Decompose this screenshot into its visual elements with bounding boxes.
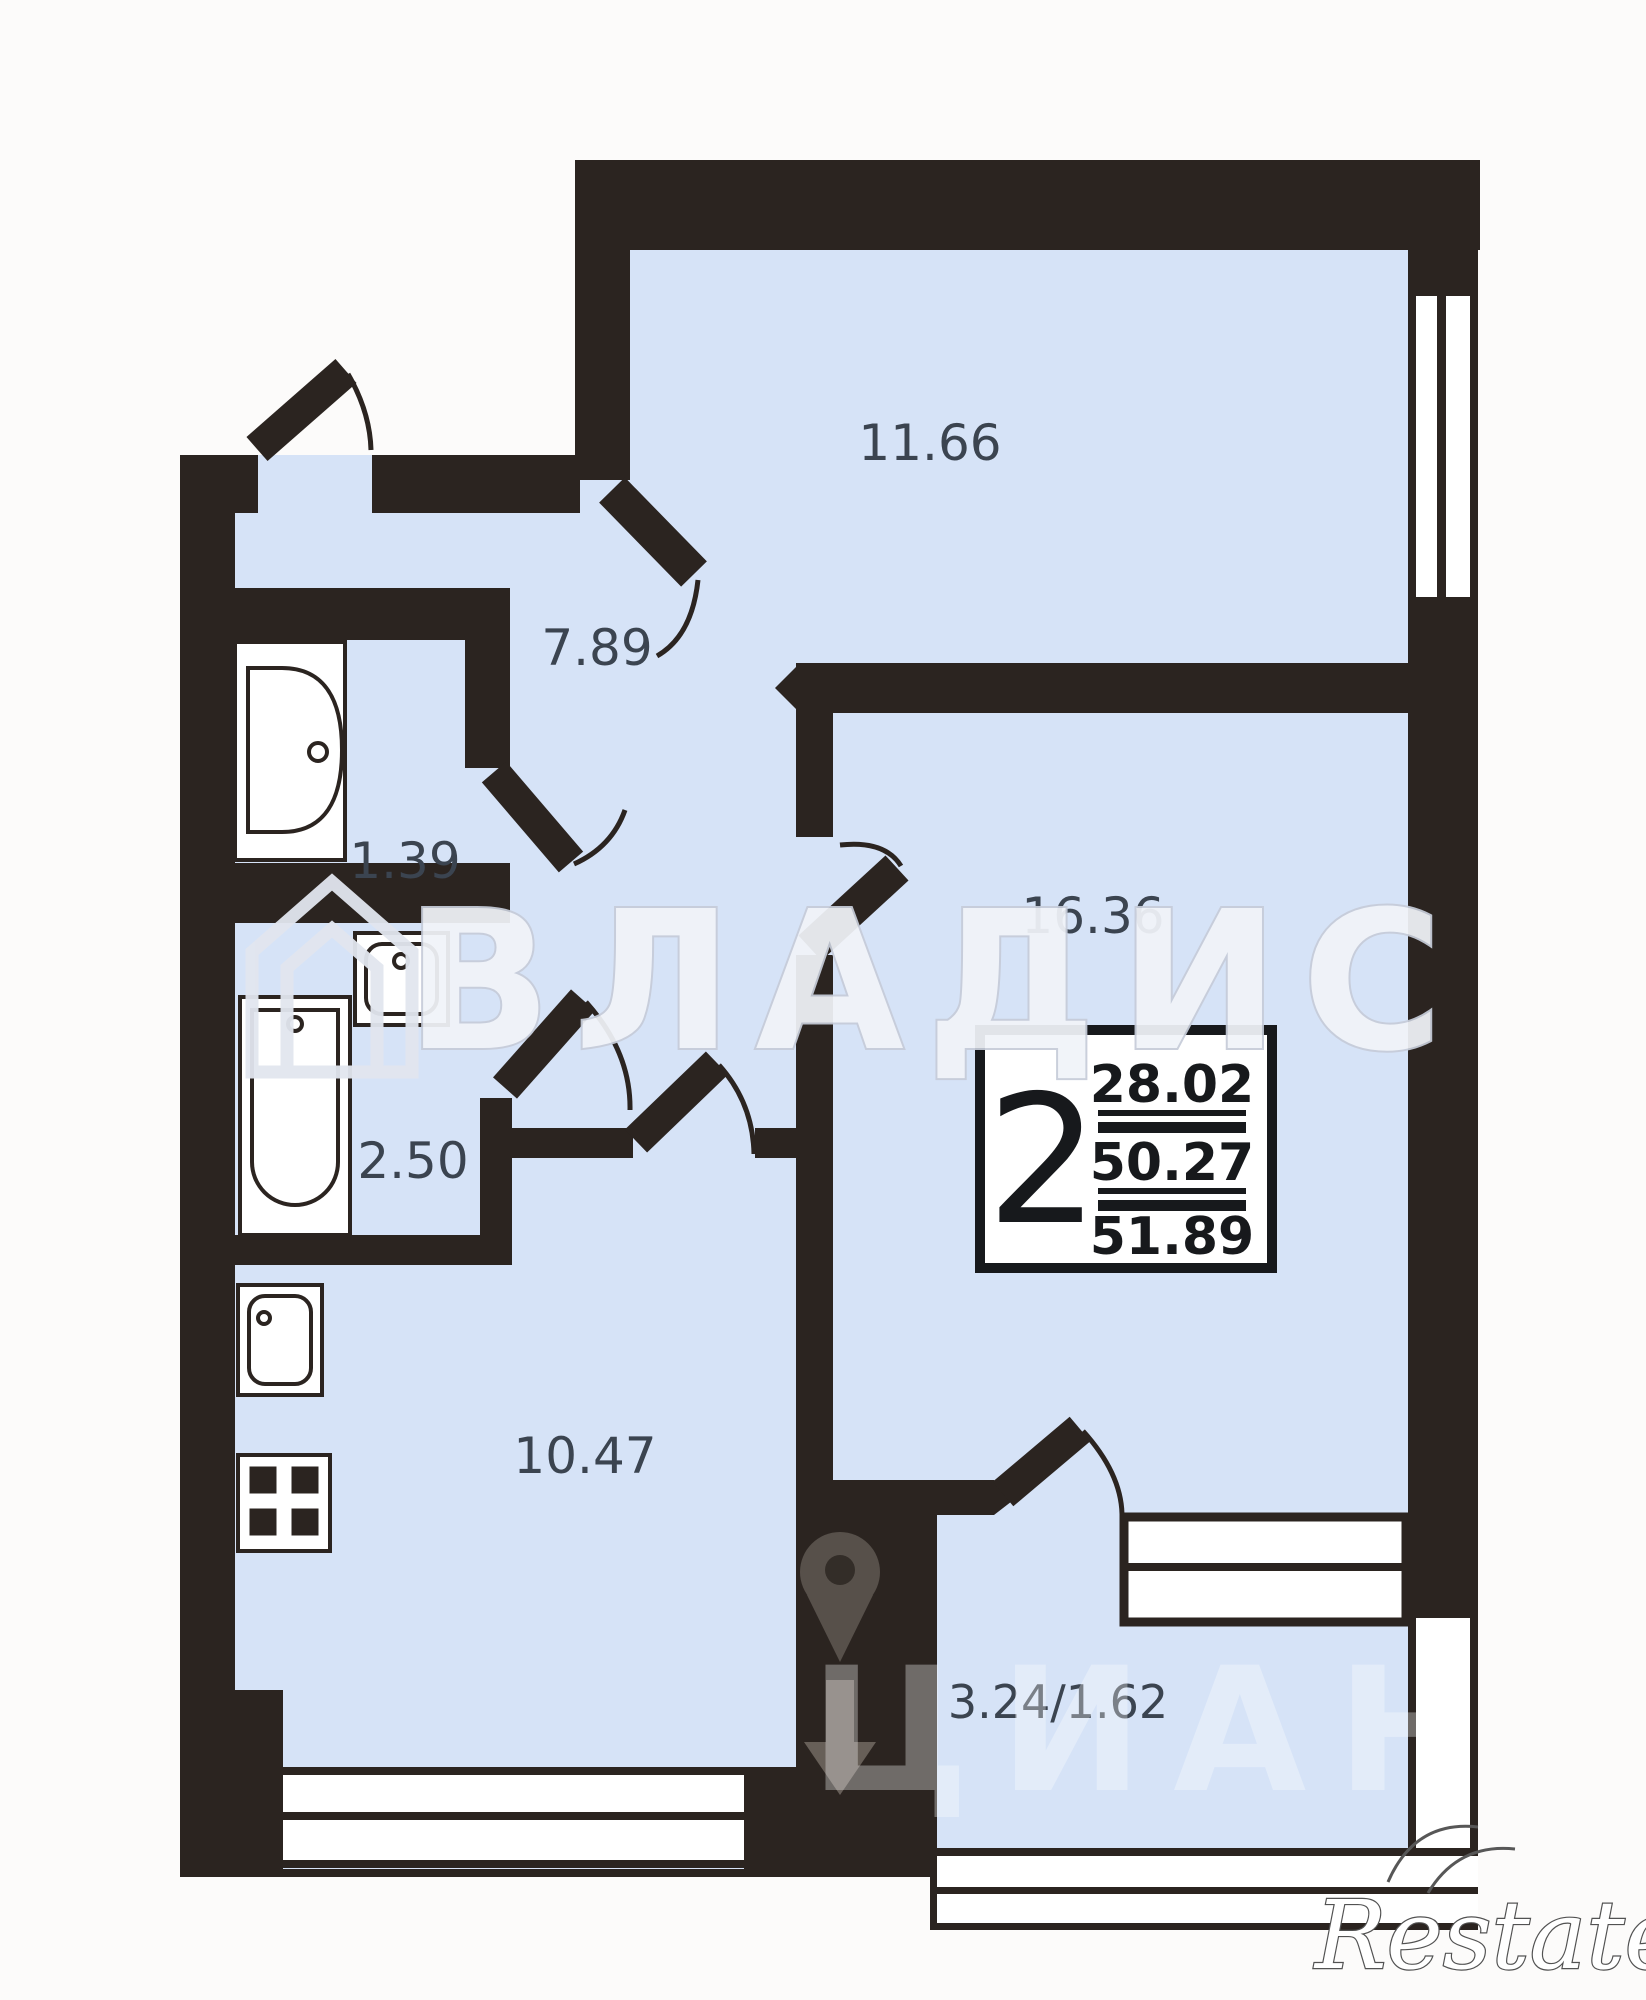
- vladis-watermark-text: ВЛАДИС: [406, 871, 1465, 1094]
- stove-burner: [250, 1509, 276, 1535]
- window-frame-line: [930, 1848, 1478, 1856]
- wall-living-bottom: [800, 663, 1408, 713]
- wall-bedroom-balcony: [937, 1480, 994, 1515]
- window-frame-line: [1408, 296, 1416, 597]
- floor-plan-page: 11.66 7.89 1.39 2.50 16.36 10.47 3.24/1.…: [0, 0, 1646, 2000]
- window-sill-line: [240, 1869, 796, 1877]
- info-area: 50.27: [1090, 1133, 1254, 1193]
- door-leaf: [257, 371, 346, 449]
- wall-kitchen-top-stub: [755, 1128, 796, 1158]
- label-kitchen: 10.47: [513, 1427, 656, 1485]
- info-rule: [1098, 1110, 1246, 1116]
- wall-hall-top-right: [372, 455, 580, 513]
- wall-hall-top-left: [180, 455, 258, 513]
- wall-wc-top: [180, 588, 510, 640]
- wall-outer-left: [180, 455, 235, 1877]
- window-frame-line: [1470, 296, 1478, 597]
- wall-kitchen-window-left-pier: [235, 1690, 283, 1877]
- sink-basin: [249, 1296, 311, 1384]
- label-living-room: 11.66: [858, 414, 1001, 472]
- stove-burner: [292, 1509, 318, 1535]
- wall-wc-right: [465, 588, 510, 768]
- sink-drain: [258, 1312, 270, 1324]
- stove-burner: [292, 1467, 318, 1493]
- kitchen-sink-icon: [238, 1285, 322, 1395]
- label-bathroom: 2.50: [357, 1132, 468, 1190]
- info-rule: [1098, 1122, 1246, 1133]
- window-living-room: [1408, 296, 1478, 597]
- stove-icon: [238, 1455, 330, 1551]
- toilet-icon: [235, 642, 345, 860]
- wall-kitchen-window-pier: [744, 1767, 796, 1877]
- window-kitchen: [240, 1767, 796, 1877]
- toilet-drain: [309, 743, 327, 761]
- info-rule: [1098, 1188, 1246, 1194]
- wall-hall-bedroom-upper: [796, 663, 833, 837]
- window-balcony-unit: [1124, 1517, 1406, 1622]
- stove-burner: [250, 1467, 276, 1493]
- wall-outer-right: [1408, 597, 1478, 1618]
- restate-logo-text: Restate: [1313, 1881, 1646, 1991]
- pin-hole: [825, 1555, 855, 1585]
- wall-outer-top: [575, 160, 1480, 250]
- wall-bath-bottom: [180, 1235, 512, 1265]
- wall-kitchen-top: [512, 1128, 633, 1158]
- window-frame-line: [283, 1812, 744, 1820]
- label-hallway: 7.89: [541, 619, 652, 677]
- floor-plan: 11.66 7.89 1.39 2.50 16.36 10.47 3.24/1.…: [0, 0, 1646, 2000]
- info-total-area: 51.89: [1090, 1207, 1254, 1267]
- window-frame-line: [283, 1860, 744, 1868]
- window-frame-line: [283, 1767, 744, 1775]
- cian-watermark-text: ЦИАН: [810, 1630, 1511, 1831]
- entrance-door: [257, 371, 371, 450]
- bathtub-shape: [252, 1010, 338, 1205]
- door-arc: [348, 374, 371, 450]
- window-frame-line: [1437, 296, 1446, 597]
- wall-outer-right-upper: [1408, 160, 1478, 296]
